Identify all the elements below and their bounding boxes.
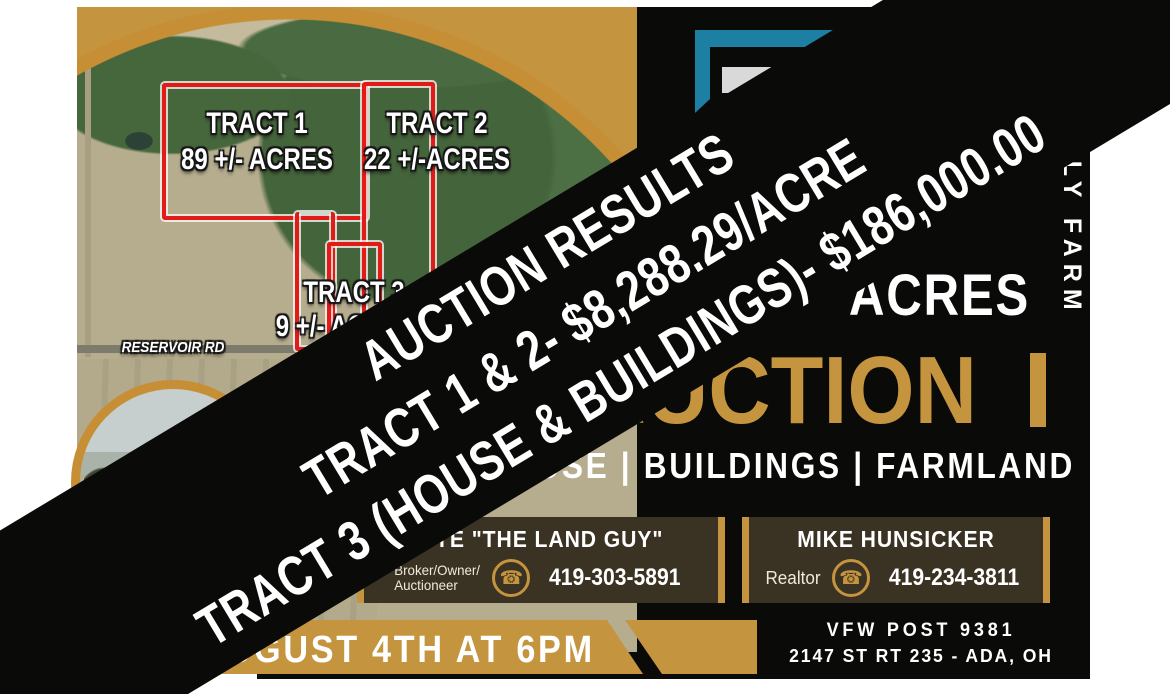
venue-block: VFW POST 9381 2147 ST RT 235 - ADA, OH	[765, 618, 1077, 668]
agent-role: Broker/Owner/ Auctioneer	[394, 563, 480, 593]
venue-name: VFW POST 9381	[773, 618, 1069, 643]
contact-panel-hunsicker: MIKE HUNSICKER Realtor ☎ 419-234-3811	[742, 517, 1050, 603]
agent-role-line2: Auctioneer	[394, 578, 480, 593]
auction-flyer-page: TRACT 1 89 +/- ACRES TRACT 2 22 +/-ACRES…	[0, 0, 1170, 694]
road-label: RESERVOIR RD	[119, 339, 227, 356]
phone-number: 419-303-5891	[549, 564, 681, 592]
tract-2-label: TRACT 2	[373, 107, 501, 141]
venue-address: 2147 ST RT 235 - ADA, OH	[773, 643, 1069, 668]
agent-role: Realtor	[765, 571, 820, 586]
agent-role-line1: Broker/Owner/	[394, 563, 480, 578]
phone-icon: ☎	[492, 559, 530, 597]
tract-2-acreage: 22 +/-ACRES	[357, 143, 517, 177]
phone-number: 419-234-3811	[889, 564, 1019, 592]
tract-1-label: TRACT 1	[193, 107, 321, 141]
phone-icon: ☎	[832, 559, 870, 597]
tract-1-acreage: 89 +/- ACRES	[177, 143, 337, 177]
agent-name: MIKE HUNSICKER	[754, 526, 1037, 553]
gold-accent-bar	[1030, 353, 1046, 427]
